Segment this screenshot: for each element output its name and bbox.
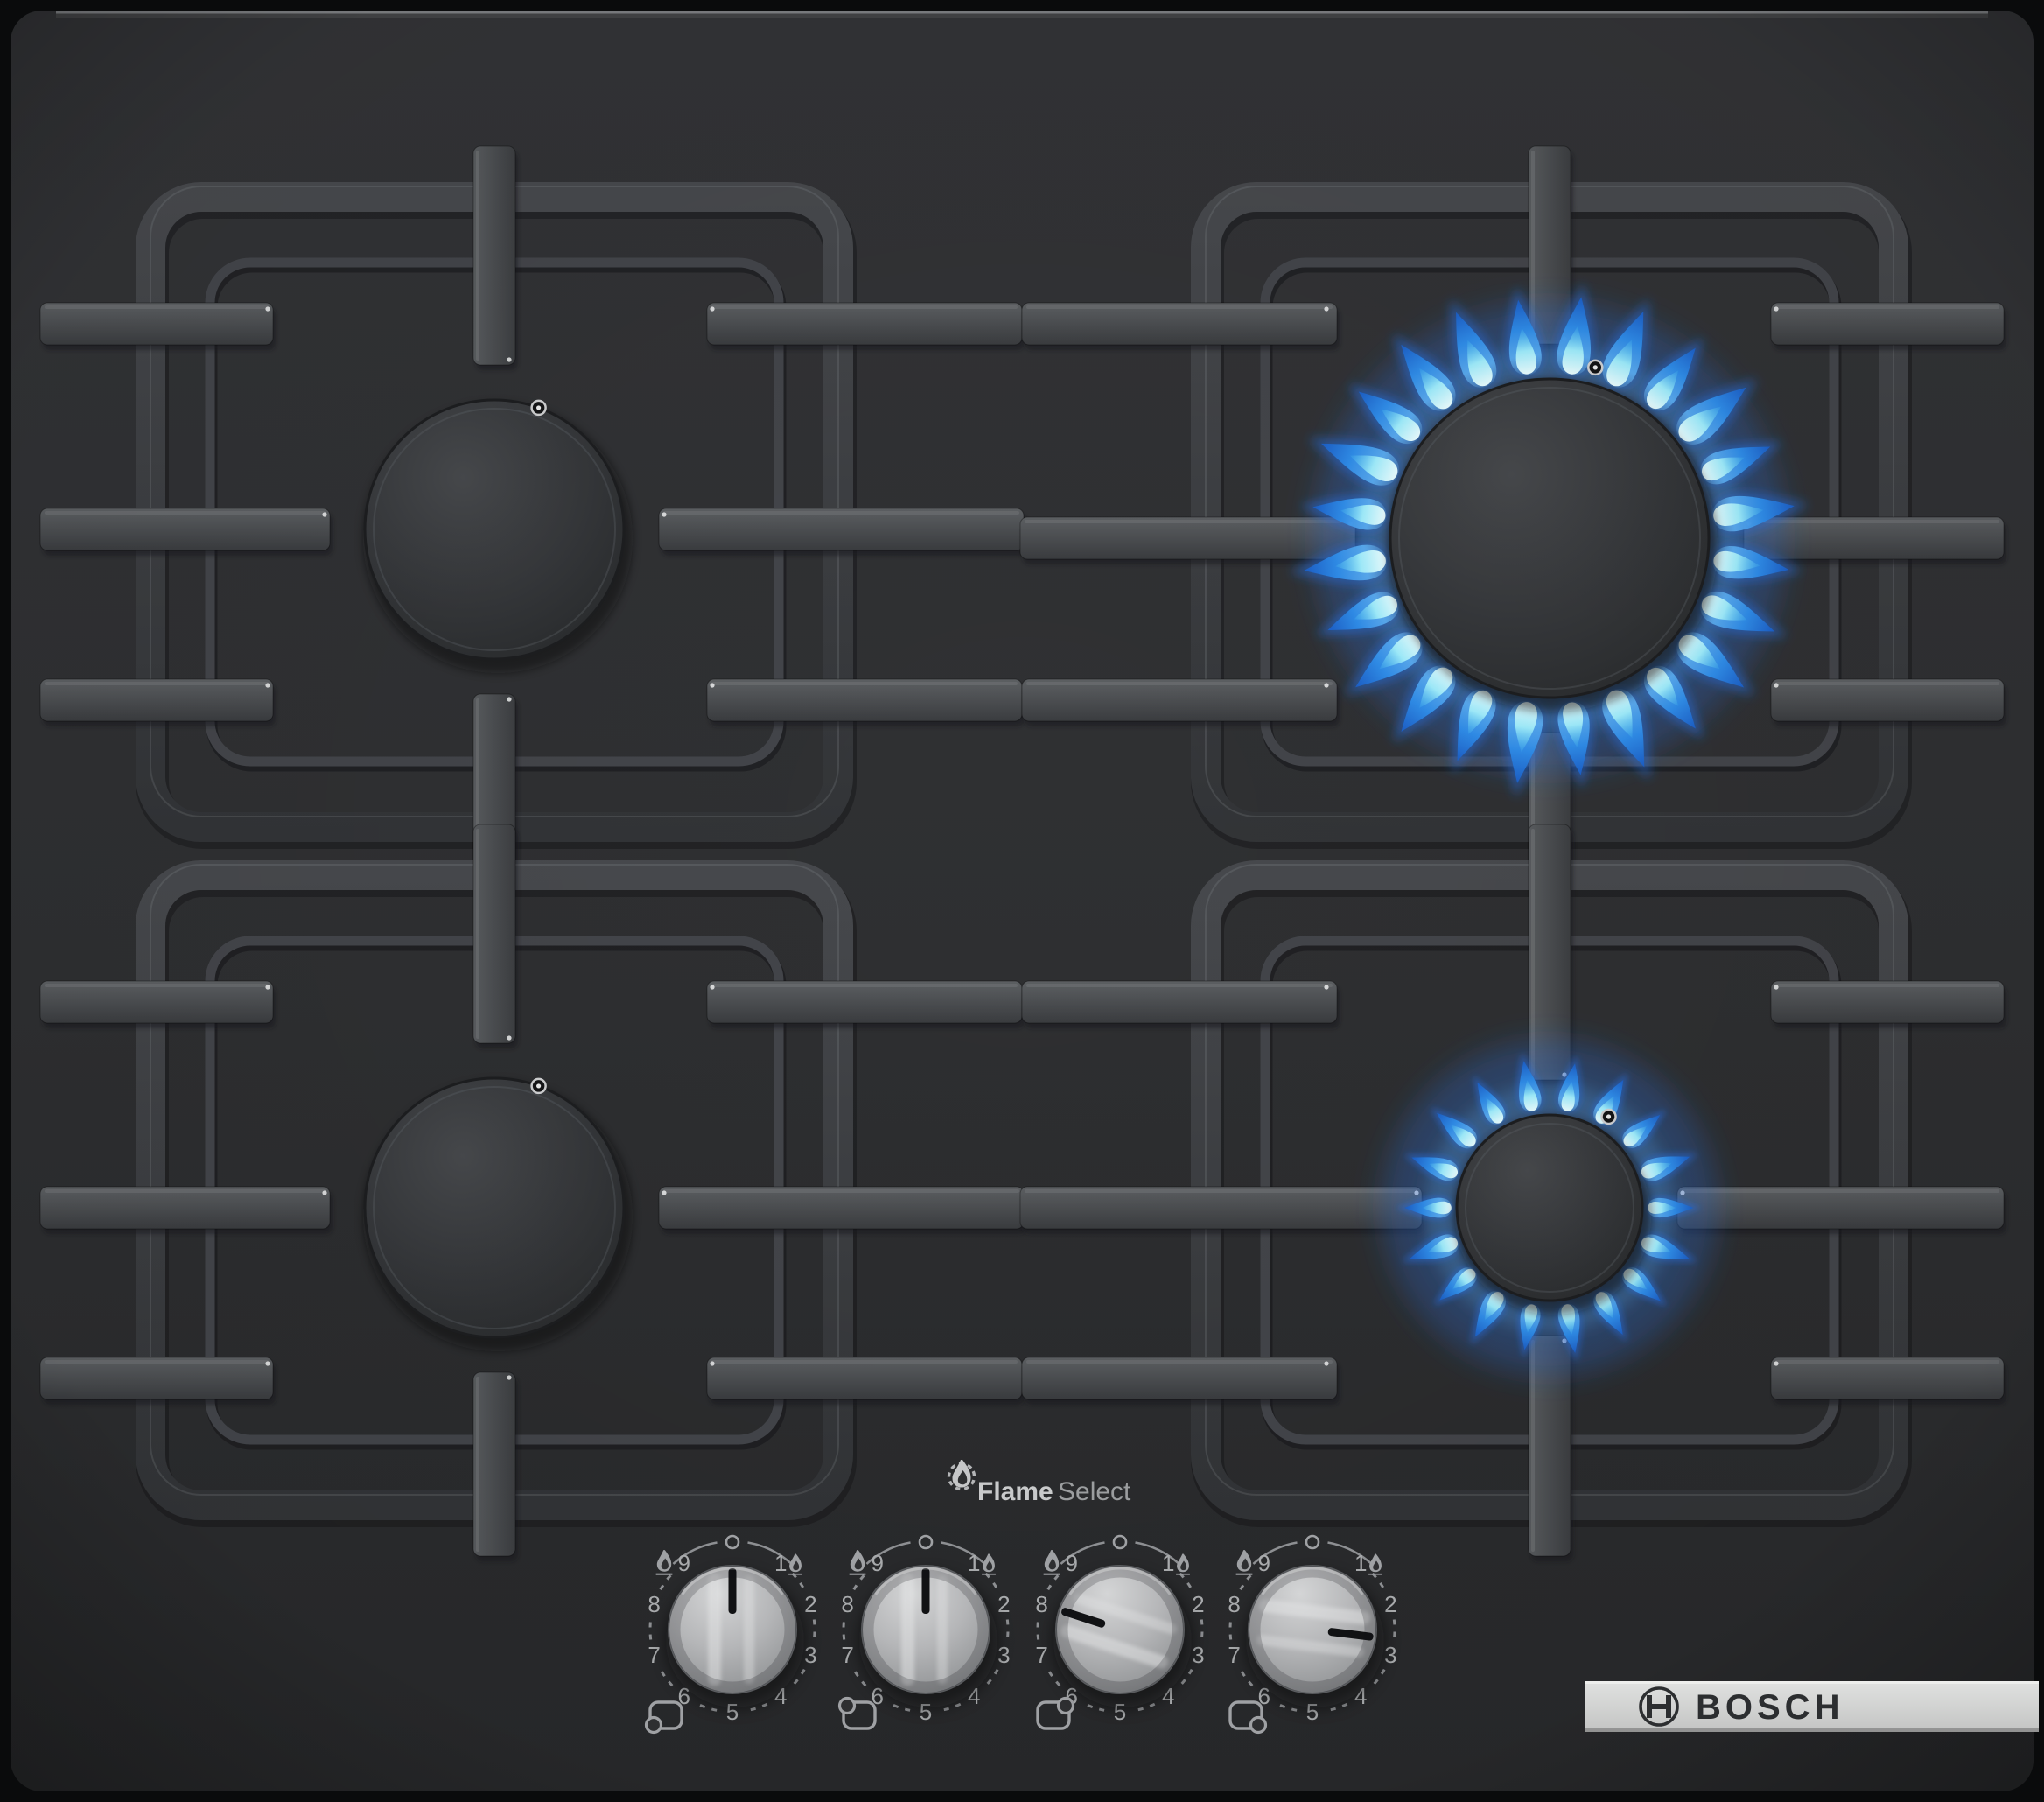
knob-stripe bbox=[708, 1574, 721, 1686]
dial-number: 3 bbox=[804, 1642, 816, 1668]
knob-back-left[interactable] bbox=[862, 1566, 990, 1693]
bosch-logo: BOSCH bbox=[1585, 1681, 2039, 1732]
dial-number: 8 bbox=[647, 1591, 660, 1617]
badge-text-regular: Select bbox=[1058, 1477, 1131, 1506]
knob-stripe bbox=[744, 1575, 754, 1684]
knob-back-right[interactable] bbox=[1054, 1566, 1184, 1693]
dial-number: 2 bbox=[1384, 1591, 1396, 1617]
knob-stripe bbox=[901, 1574, 914, 1686]
logo-plate-shadow bbox=[1585, 1728, 2039, 1732]
knob-stripe bbox=[937, 1575, 948, 1684]
knob-front-left[interactable] bbox=[668, 1566, 796, 1693]
dial-number: 3 bbox=[1384, 1642, 1396, 1668]
dial-number: 1 bbox=[774, 1550, 787, 1576]
dial-number: 7 bbox=[1228, 1642, 1240, 1668]
dial-number: 7 bbox=[1035, 1642, 1047, 1668]
dial-number: 3 bbox=[997, 1642, 1010, 1668]
dial-number: 2 bbox=[997, 1591, 1010, 1617]
vignette bbox=[10, 11, 2033, 1791]
logo-plate-highlight bbox=[1585, 1681, 2039, 1684]
dial-number: 7 bbox=[841, 1642, 853, 1668]
dial-number: 3 bbox=[1192, 1642, 1204, 1668]
dial-number: 8 bbox=[1228, 1591, 1240, 1617]
dial-number: 1 bbox=[1354, 1550, 1367, 1576]
dial-number: 9 bbox=[871, 1550, 884, 1576]
dial-number: 2 bbox=[1192, 1591, 1204, 1617]
gas-hob-photo: 123456789123456789123456789123456789 Fla… bbox=[0, 0, 2044, 1802]
badge-text-bold: Flame bbox=[977, 1477, 1053, 1506]
dial-number: 8 bbox=[841, 1591, 853, 1617]
knob-front-right[interactable] bbox=[1249, 1566, 1376, 1693]
brand-wordmark: BOSCH bbox=[1696, 1688, 1844, 1727]
dial-number: 9 bbox=[678, 1550, 690, 1576]
dial-number: 9 bbox=[1258, 1550, 1270, 1576]
dial-number: 2 bbox=[804, 1591, 816, 1617]
dial-number: 1 bbox=[1162, 1550, 1174, 1576]
dial-number: 9 bbox=[1066, 1550, 1078, 1576]
dial-number: 1 bbox=[968, 1550, 980, 1576]
dial-number: 7 bbox=[647, 1642, 660, 1668]
dial-number: 8 bbox=[1035, 1591, 1047, 1617]
